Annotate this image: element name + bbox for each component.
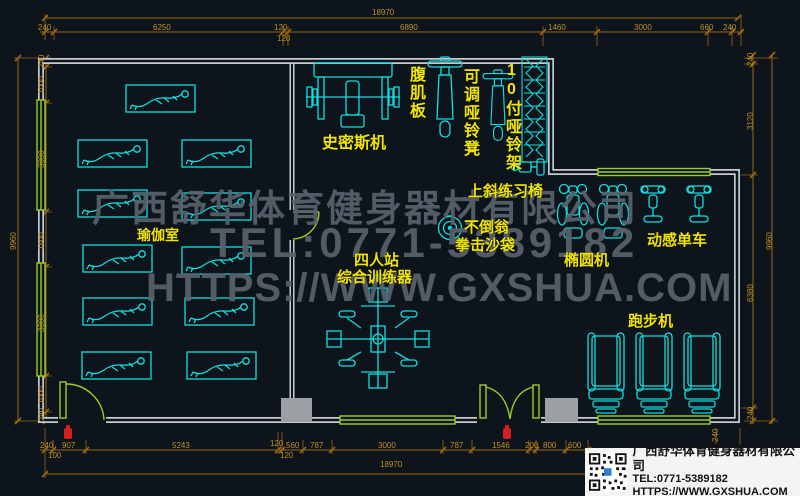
- qr-center-logo: [604, 468, 612, 476]
- label-incline-chair: 上斜练习椅: [468, 184, 543, 201]
- label-elliptical: 椭圆机: [564, 253, 609, 270]
- logo-company-name: 广西舒华体育健身器材有限公司: [632, 444, 797, 473]
- dim-top-7: 240: [723, 24, 736, 32]
- label-punching-bag: 拳击沙袋: [455, 238, 515, 255]
- dim-left-2: 3000: [38, 150, 46, 168]
- dim-top-2: 120: [274, 24, 287, 32]
- dim-top-5: 3000: [634, 24, 652, 32]
- dim-left-3: 1500: [38, 232, 46, 250]
- label-treadmill: 跑步机: [628, 314, 673, 331]
- dim-right-1: 3120: [747, 112, 755, 130]
- yoga-mat: [83, 298, 152, 325]
- column: [545, 398, 578, 422]
- label-spin-bike: 动感单车: [647, 233, 707, 250]
- fire-extinguisher-icon: [64, 425, 72, 439]
- label-ab-board: 腹肌板: [407, 66, 423, 120]
- fire-extinguisher-icon: [503, 425, 511, 439]
- label-yoga-room: 瑜伽室: [137, 228, 179, 243]
- dim-bottom-9: 200: [525, 442, 538, 450]
- dim-right-total: 9960: [766, 232, 774, 250]
- dim-top-1: 6250: [153, 24, 171, 32]
- label-smith-machine: 史密斯机: [322, 135, 386, 153]
- dim-left-total: 9960: [10, 232, 18, 250]
- dim-bottom-5: 787: [310, 442, 323, 450]
- yoga-mat: [187, 352, 256, 379]
- dim-right-0: 240: [747, 53, 755, 66]
- window-bottom-right: [598, 416, 710, 424]
- qr-code: [588, 451, 627, 493]
- dim-right-2: 6380: [747, 284, 755, 302]
- dim-bottom-8: 1546: [492, 442, 510, 450]
- label-four-station-1: 四人站: [354, 253, 399, 270]
- label-tumbler: 不倒翁: [464, 220, 509, 237]
- treadmill-icon: [684, 333, 720, 413]
- logo-url: HTTPS://WWW.GXSHUA.COM: [632, 486, 797, 496]
- dim-bottom-extra-100: 100: [48, 452, 61, 460]
- label-four-station-2: 综合训练器: [337, 270, 412, 287]
- dim-bottom-1: 907: [62, 442, 75, 450]
- label-adjustable-dumbbell-bench: 可调哑铃凳: [461, 68, 477, 158]
- dim-left-4: 3000: [38, 314, 46, 332]
- dim-bottom-3: 120: [270, 440, 283, 448]
- treadmill-icon: [588, 333, 624, 413]
- dim-bottom-11: 600: [568, 442, 581, 450]
- dim-bottom-4: 560: [286, 442, 299, 450]
- door-double-bottom: [480, 385, 539, 419]
- dim-left-6: 240: [38, 408, 46, 421]
- dim-left-0: 240: [38, 55, 46, 68]
- watermark-url: HTTPS://WWW.GXSHUA.COM: [146, 266, 732, 311]
- dim-top-0: 240: [38, 24, 51, 32]
- dim-bottom-0: 240: [40, 442, 53, 450]
- yoga-mat: [182, 140, 251, 167]
- window-bottom-center: [340, 416, 455, 424]
- dim-right-3: 240: [747, 407, 755, 420]
- yoga-mat: [126, 85, 195, 112]
- yoga-mat: [78, 140, 147, 167]
- spin-bike-icon: [687, 186, 711, 222]
- window-notch: [598, 169, 710, 176]
- dumbbell-rack-icon: [522, 57, 547, 162]
- column: [281, 398, 312, 422]
- smith-machine-icon: [306, 63, 400, 127]
- dim-left-5: 1000: [38, 386, 46, 404]
- dim-bottom-extra-120: 120: [280, 452, 293, 460]
- dim-top-3: 6890: [400, 24, 418, 32]
- dim-top-4: 1460: [548, 24, 566, 32]
- dim-top-total: 18970: [372, 9, 394, 17]
- dim-top-extra: 120: [277, 35, 290, 43]
- label-dumbbell-rack: 10付哑铃架: [503, 62, 519, 172]
- logo-tel: TEL:0771-5389182: [632, 473, 797, 486]
- yoga-mat: [82, 352, 151, 379]
- dim-bottom-7: 787: [450, 442, 463, 450]
- dim-top-6: 660: [700, 24, 713, 32]
- treadmill-icon: [636, 333, 672, 413]
- yoga-mat: [83, 245, 152, 272]
- dim-bottom-10: 800: [543, 442, 556, 450]
- dim-bottom-total: 18970: [380, 461, 402, 469]
- spin-bike-icon: [641, 186, 665, 222]
- ab-board-icon: [428, 57, 462, 137]
- dim-bottom-right-240: 240: [712, 429, 720, 442]
- dim-left-1: 1000: [38, 76, 46, 94]
- floor-plan-canvas: 广西舒华体育健身器材有限公司 TEL:0771-5389182 HTTPS://…: [0, 0, 800, 496]
- dim-bottom-2: 5243: [172, 442, 190, 450]
- logo-box: 广西舒华体育健身器材有限公司 TEL:0771-5389182 HTTPS://…: [585, 448, 800, 496]
- dim-bottom-6: 3000: [378, 442, 396, 450]
